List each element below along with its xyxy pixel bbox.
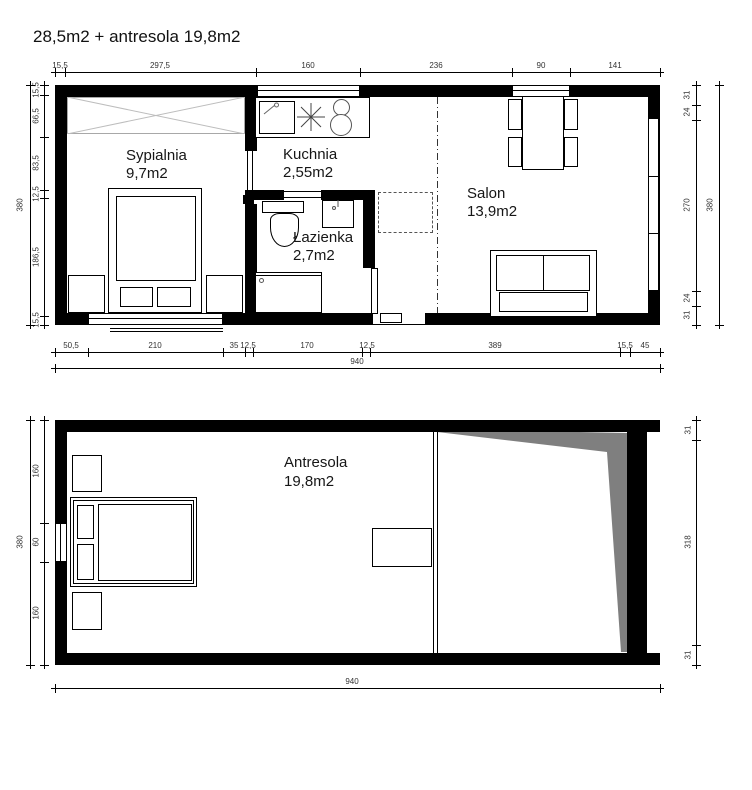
dim-value: 45 [641,341,650,350]
antresola-wall-left-b [55,562,67,653]
dim-value: 12,5 [32,186,41,202]
antresola-wall-bottom [55,653,660,665]
room-label-lazienka: Łazienka [293,229,353,246]
room-label-kuchnia: Kuchnia [283,146,337,163]
dim-line [44,416,45,669]
antresola-edge-line [437,97,438,313]
dim-value: 15,5 [617,341,633,350]
room-label-sypialnia: Sypialnia [126,147,187,164]
dim-value: 66,5 [32,108,41,124]
bathroom-wall-left [245,190,283,200]
roof-slope-shading [430,425,630,657]
antresola-window [55,523,67,562]
dim-value: 160 [32,606,41,619]
antresola-nightstand [72,592,102,630]
room-area-antresola: 19,8m2 [284,473,334,490]
chair [508,99,522,130]
dim-line [696,416,697,669]
sofa-back [499,292,588,312]
dim-value: 141 [608,61,621,70]
antresola-window-glazing [60,524,61,561]
dim-value: 160 [301,61,314,70]
dim-value: 60 [32,538,41,547]
dim-value: 83,5 [32,155,41,171]
dim-total: 380 [706,198,715,211]
salon-side-window-divider [649,233,658,234]
sofa-cushion [496,255,544,291]
dim-value: 24 [683,294,692,303]
dim-value: 160 [32,464,41,477]
dim-total: 940 [350,357,363,366]
kitchen-window-glazing [258,90,359,91]
antresola-railing [437,432,438,653]
dim-line [51,368,664,369]
toilet-tank [262,201,304,213]
hall-cabinet-overhead [378,192,433,233]
entrance-door-leaf [371,268,378,314]
wall-bottom-a [55,313,88,325]
bed-mattress [116,196,196,281]
room-label-salon: Salon [467,185,505,202]
dim-line [30,416,31,669]
salon-top-window-glazing [513,90,569,91]
shower [255,272,322,313]
wall-left [55,85,67,325]
dim-line [719,81,720,329]
dim-value: 31 [683,91,692,100]
nightstand [206,275,243,313]
dim-value: 24 [683,108,692,117]
dim-value: 236 [429,61,442,70]
bedroom-window-sill [110,328,223,329]
chair [564,137,578,167]
wardrobe-cross [67,97,245,134]
bathroom-door [283,197,322,198]
room-area-kuchnia: 2,55m2 [283,164,333,181]
floor-plan-page: { "title": "28,5m2 + antresola 19,8m2", … [0,0,752,790]
shower-edge [256,275,321,276]
bed-pillow [120,287,153,307]
bedroom-door-jamb [245,150,257,151]
antresola-railing [433,432,434,653]
dim-value: 270 [683,198,692,211]
wall-top-c [570,85,660,97]
dim-line [51,688,664,689]
bathroom-door-jamb [321,190,322,200]
salon-side-window-divider [649,176,658,177]
dim-value: 50,5 [63,341,79,350]
wall-bottom-b [223,313,373,325]
dim-value: 318 [684,535,693,548]
antresola-wall-top [55,420,660,432]
dim-total: 940 [345,677,358,686]
washbasin-faucet-icon [330,198,346,214]
chair [508,137,522,167]
room-area-sypialnia: 9,7m2 [126,165,168,182]
dim-value: 90 [537,61,546,70]
dim-value: 31 [683,311,692,320]
dim-value: 12,5 [359,341,375,350]
room-area-lazienka: 2,7m2 [293,247,335,264]
dim-value: 12,5 [240,341,256,350]
entrance-threshold-line [373,324,425,325]
antresola-wall-left-a [55,432,67,523]
shower-drain [259,278,264,283]
dining-table [522,96,564,170]
room-label-antresola: Antresola [284,454,347,471]
kitchen-window [257,85,360,97]
dim-line [51,352,664,353]
bedroom-door-jamb [245,204,257,205]
dim-line [30,81,31,329]
bathroom-door-jamb [283,190,284,200]
chair [564,99,578,130]
bed-pillow [157,287,191,307]
dim-value: 389 [488,341,501,350]
antresola-nightstand [72,455,102,492]
salon-side-window [648,118,659,291]
room-area-salon: 13,9m2 [467,203,517,220]
bedroom-window-sill [110,331,223,332]
wall-top-a [55,85,257,97]
antresola-bed-mattress [98,504,192,581]
bathroom-door [283,191,322,192]
antresola-wall-right [627,432,647,653]
hall-wall [363,190,375,268]
bedroom-window-glazing [89,318,222,319]
dim-value: 210 [148,341,161,350]
dim-value: 170 [300,341,313,350]
antresola-bed-pillow [77,544,94,580]
dim-line [44,81,45,329]
dim-value: 31 [684,426,693,435]
page-title: 28,5m2 + antresola 19,8m2 [33,27,240,47]
wall-top-b [360,85,512,97]
dim-value: 297,5 [150,61,170,70]
faucet-icon [261,101,281,117]
cooktop-burner-icon [296,102,326,132]
dim-line [51,72,664,73]
antresola-desk [372,528,432,567]
nightstand [68,275,105,313]
dim-value: 31 [684,651,693,660]
antresola-bed-pillow [77,505,94,539]
entrance-threshold [380,313,402,323]
sofa-cushion [543,255,590,291]
dim-value: 186,5 [32,247,41,267]
dim-total: 380 [16,535,25,548]
dim-total: 380 [16,198,25,211]
burner-circle [330,114,352,136]
bedroom-window [88,313,223,325]
dim-value: 35 [230,341,239,350]
dim-value: 15,5 [52,61,68,70]
